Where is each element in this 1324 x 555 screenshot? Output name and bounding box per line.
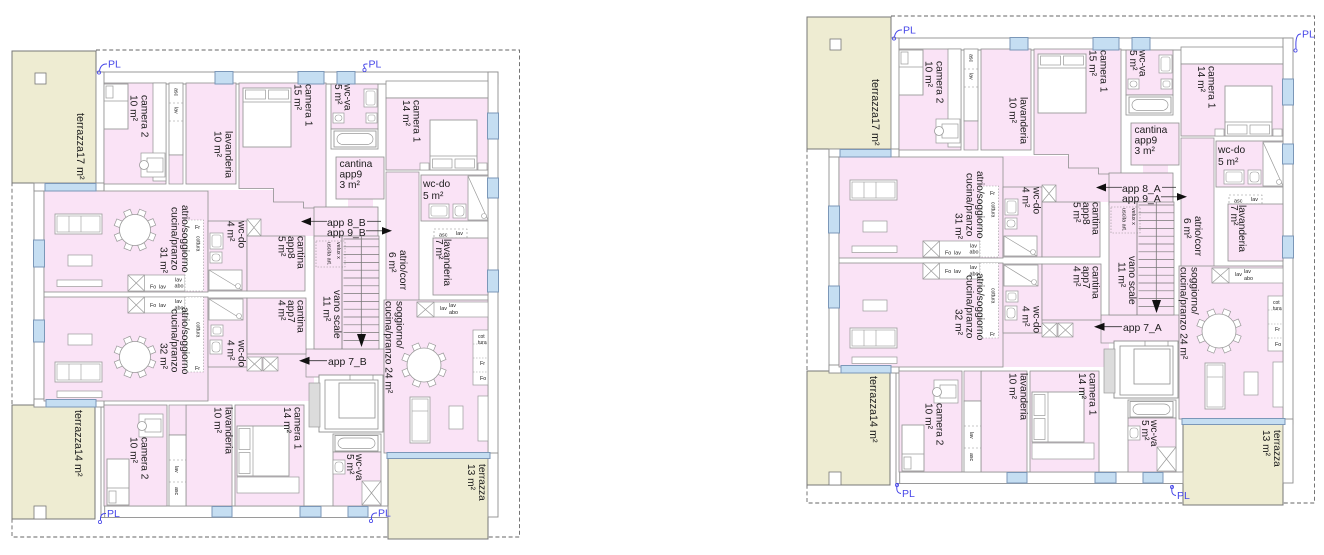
svg-text:5 m²: 5 m² bbox=[1127, 50, 1138, 71]
svg-text:cantina: cantina bbox=[1135, 125, 1168, 136]
svg-text:atrio/soggiorno: atrio/soggiorno bbox=[974, 171, 985, 239]
svg-text:app 9_B: app 9_B bbox=[327, 228, 366, 239]
svg-text:PL: PL bbox=[1302, 29, 1315, 41]
svg-text:13 m²: 13 m² bbox=[1260, 430, 1271, 457]
svg-text:atrio/soggiorno: atrio/soggiorno bbox=[179, 205, 190, 273]
svg-text:asc: asc bbox=[173, 487, 179, 495]
svg-text:PL: PL bbox=[902, 488, 915, 500]
svg-text:terrazza17 m²: terrazza17 m² bbox=[869, 79, 881, 146]
svg-text:cottura: cottura bbox=[989, 288, 995, 304]
svg-text:terrazza17 m²: terrazza17 m² bbox=[74, 113, 86, 180]
svg-text:PL: PL bbox=[107, 508, 120, 520]
svg-text:PL: PL bbox=[108, 59, 121, 71]
svg-text:camera 1: camera 1 bbox=[1206, 66, 1217, 109]
svg-text:app 7_A: app 7_A bbox=[1123, 323, 1162, 334]
svg-text:cucina/pranzo: cucina/pranzo bbox=[169, 207, 180, 271]
svg-text:uscita art.: uscita art. bbox=[1121, 208, 1127, 231]
svg-text:6 m²: 6 m² bbox=[1181, 218, 1192, 239]
svg-text:lav: lav bbox=[954, 269, 961, 275]
svg-text:atrio/soggiorno: atrio/soggiorno bbox=[974, 273, 985, 341]
svg-text:10 m²: 10 m² bbox=[212, 407, 223, 434]
svg-text:app 9_A: app 9_A bbox=[1122, 194, 1161, 205]
svg-text:Fr: Fr bbox=[480, 361, 485, 367]
svg-text:lav: lav bbox=[449, 303, 456, 309]
svg-text:lavanderia: lavanderia bbox=[223, 131, 234, 178]
svg-text:PL: PL bbox=[369, 59, 382, 71]
svg-text:3 m²: 3 m² bbox=[1135, 146, 1156, 157]
svg-text:lav: lav bbox=[175, 299, 182, 305]
svg-text:lavanderia: lavanderia bbox=[1018, 97, 1029, 144]
svg-text:7 m²: 7 m² bbox=[1228, 205, 1239, 226]
svg-text:32 m²: 32 m² bbox=[158, 343, 169, 370]
svg-text:camera 1: camera 1 bbox=[411, 100, 422, 143]
svg-text:6 m²: 6 m² bbox=[386, 252, 397, 273]
svg-text:uscita art.: uscita art. bbox=[326, 242, 332, 265]
svg-text:5 m²: 5 m² bbox=[332, 84, 343, 105]
svg-text:Fr: Fr bbox=[990, 332, 995, 338]
svg-text:lav: lav bbox=[159, 285, 166, 291]
svg-text:4 m²: 4 m² bbox=[1020, 306, 1031, 327]
svg-text:cantina: cantina bbox=[340, 159, 373, 170]
svg-text:Fr: Fr bbox=[195, 225, 200, 231]
svg-text:abo: abo bbox=[1244, 276, 1253, 282]
svg-text:wc-do: wc-do bbox=[236, 339, 247, 368]
svg-text:10 m²: 10 m² bbox=[128, 95, 139, 122]
svg-text:cottura: cottura bbox=[194, 236, 200, 252]
svg-text:14 m²: 14 m² bbox=[1195, 66, 1206, 93]
svg-text:lav: lav bbox=[173, 466, 179, 473]
svg-text:11 m²: 11 m² bbox=[321, 296, 332, 322]
svg-text:4 m²: 4 m² bbox=[276, 300, 287, 321]
svg-text:lav: lav bbox=[970, 265, 977, 271]
svg-text:13 m²: 13 m² bbox=[465, 464, 476, 491]
svg-text:5 m²: 5 m² bbox=[1071, 202, 1082, 223]
svg-text:camera 2: camera 2 bbox=[934, 61, 945, 104]
svg-text:10 m²: 10 m² bbox=[128, 437, 139, 464]
svg-text:5 m²: 5 m² bbox=[1139, 420, 1150, 441]
svg-text:camera 2: camera 2 bbox=[139, 95, 150, 138]
svg-text:Fr: Fr bbox=[990, 191, 995, 197]
svg-text:app9: app9 bbox=[340, 170, 363, 181]
svg-text:Fo: Fo bbox=[150, 303, 156, 309]
svg-text:cucina/pranzo 24 m²: cucina/pranzo 24 m² bbox=[1178, 267, 1189, 360]
svg-text:terrazza14 m²: terrazza14 m² bbox=[72, 410, 84, 477]
svg-text:10 m²: 10 m² bbox=[923, 403, 934, 430]
svg-text:app9: app9 bbox=[1135, 136, 1158, 147]
svg-text:terrazza14 m²: terrazza14 m² bbox=[867, 376, 879, 443]
svg-text:4 m²: 4 m² bbox=[1071, 266, 1082, 287]
svg-text:14 m²: 14 m² bbox=[400, 100, 411, 127]
svg-text:velux x: velux x bbox=[1130, 208, 1136, 225]
svg-text:soggiorno/: soggiorno/ bbox=[1189, 267, 1200, 315]
svg-text:atrio/corr: atrio/corr bbox=[1192, 216, 1203, 257]
svg-text:15 m²: 15 m² bbox=[1087, 50, 1098, 77]
svg-text:camera 1: camera 1 bbox=[303, 84, 314, 127]
svg-text:cottura: cottura bbox=[194, 322, 200, 338]
svg-text:lav: lav bbox=[1235, 272, 1242, 278]
svg-text:cucina/pranzo 24 m²: cucina/pranzo 24 m² bbox=[383, 301, 394, 394]
svg-text:lav: lav bbox=[968, 432, 974, 439]
svg-text:Fr: Fr bbox=[195, 366, 200, 372]
svg-text:4 m²: 4 m² bbox=[1020, 187, 1031, 208]
svg-text:asc: asc bbox=[968, 54, 974, 62]
svg-text:tura: tura bbox=[1273, 306, 1282, 312]
svg-text:lav: lav bbox=[1251, 197, 1258, 203]
svg-text:wc-do: wc-do bbox=[1217, 145, 1246, 156]
svg-text:14 m²: 14 m² bbox=[281, 407, 292, 434]
svg-text:32 m²: 32 m² bbox=[953, 309, 964, 336]
svg-text:cucina/pranzo: cucina/pranzo bbox=[169, 309, 180, 373]
svg-text:app 7_B: app 7_B bbox=[328, 357, 367, 368]
svg-text:10 m²: 10 m² bbox=[212, 131, 223, 158]
svg-text:abo: abo bbox=[449, 310, 458, 316]
svg-text:asc: asc bbox=[968, 453, 974, 461]
svg-text:abo: abo bbox=[175, 284, 184, 290]
svg-text:PL: PL bbox=[903, 25, 916, 37]
svg-text:camera 2: camera 2 bbox=[139, 437, 150, 480]
svg-text:lav: lav bbox=[968, 73, 974, 80]
svg-text:10 m²: 10 m² bbox=[1007, 97, 1018, 124]
svg-text:cottura: cottura bbox=[989, 202, 995, 218]
svg-text:wc-do: wc-do bbox=[422, 179, 451, 190]
svg-text:lav: lav bbox=[954, 251, 961, 257]
svg-text:5 m²: 5 m² bbox=[276, 236, 287, 257]
svg-text:lavanderia: lavanderia bbox=[223, 407, 234, 454]
svg-text:camera 1: camera 1 bbox=[292, 407, 303, 450]
svg-text:11 m²: 11 m² bbox=[1116, 262, 1127, 288]
svg-text:Fr: Fr bbox=[1275, 327, 1280, 333]
svg-text:cucina/pranzo: cucina/pranzo bbox=[964, 173, 975, 237]
svg-text:lav: lav bbox=[440, 306, 447, 312]
svg-text:7 m²: 7 m² bbox=[433, 239, 444, 260]
svg-text:terrazza: terrazza bbox=[1271, 430, 1282, 467]
svg-text:5 m²: 5 m² bbox=[1218, 157, 1239, 168]
svg-text:lav: lav bbox=[159, 303, 166, 309]
svg-text:vano scale: vano scale bbox=[331, 290, 342, 339]
svg-text:lavanderia: lavanderia bbox=[1018, 373, 1029, 420]
svg-text:10 m²: 10 m² bbox=[1007, 373, 1018, 400]
svg-text:soggiorno/: soggiorno/ bbox=[394, 301, 405, 349]
svg-text:wc-do: wc-do bbox=[236, 220, 247, 249]
svg-text:31 m²: 31 m² bbox=[953, 213, 964, 240]
svg-text:wc-do: wc-do bbox=[1031, 305, 1042, 334]
svg-text:asc: asc bbox=[173, 88, 179, 96]
svg-text:4 m²: 4 m² bbox=[225, 221, 236, 242]
svg-text:terrazza: terrazza bbox=[476, 464, 487, 501]
svg-text:lav: lav bbox=[1244, 269, 1251, 275]
svg-text:atrio/corr: atrio/corr bbox=[397, 250, 408, 291]
svg-text:wc-do: wc-do bbox=[1031, 186, 1042, 215]
svg-text:5 m²: 5 m² bbox=[423, 191, 444, 202]
svg-text:4 m²: 4 m² bbox=[225, 340, 236, 361]
svg-text:velux x: velux x bbox=[335, 242, 341, 259]
svg-text:5 m²: 5 m² bbox=[344, 454, 355, 475]
svg-text:atrio/soggiorno: atrio/soggiorno bbox=[179, 307, 190, 375]
svg-text:PL: PL bbox=[1177, 490, 1190, 502]
svg-text:lav: lav bbox=[456, 231, 463, 237]
svg-text:abo: abo bbox=[970, 250, 979, 256]
svg-text:15 m²: 15 m² bbox=[292, 84, 303, 111]
svg-text:Fo: Fo bbox=[150, 285, 156, 291]
svg-text:PL: PL bbox=[378, 508, 391, 520]
svg-text:camera 1: camera 1 bbox=[1098, 50, 1109, 93]
svg-text:Fo: Fo bbox=[480, 376, 486, 382]
svg-text:vano scale: vano scale bbox=[1126, 256, 1137, 305]
svg-text:tura: tura bbox=[478, 340, 487, 346]
svg-text:3 m²: 3 m² bbox=[340, 180, 361, 191]
svg-text:Fo: Fo bbox=[945, 269, 951, 275]
svg-text:camera 1: camera 1 bbox=[1087, 373, 1098, 416]
svg-text:31 m²: 31 m² bbox=[158, 247, 169, 274]
svg-text:10 m²: 10 m² bbox=[923, 61, 934, 88]
svg-text:lav: lav bbox=[173, 107, 179, 114]
svg-text:cucina/pranzo: cucina/pranzo bbox=[964, 275, 975, 339]
svg-text:Fo: Fo bbox=[1275, 342, 1281, 348]
svg-text:14 m²: 14 m² bbox=[1076, 373, 1087, 400]
svg-text:camera 2: camera 2 bbox=[934, 403, 945, 446]
svg-text:Fo: Fo bbox=[945, 251, 951, 257]
